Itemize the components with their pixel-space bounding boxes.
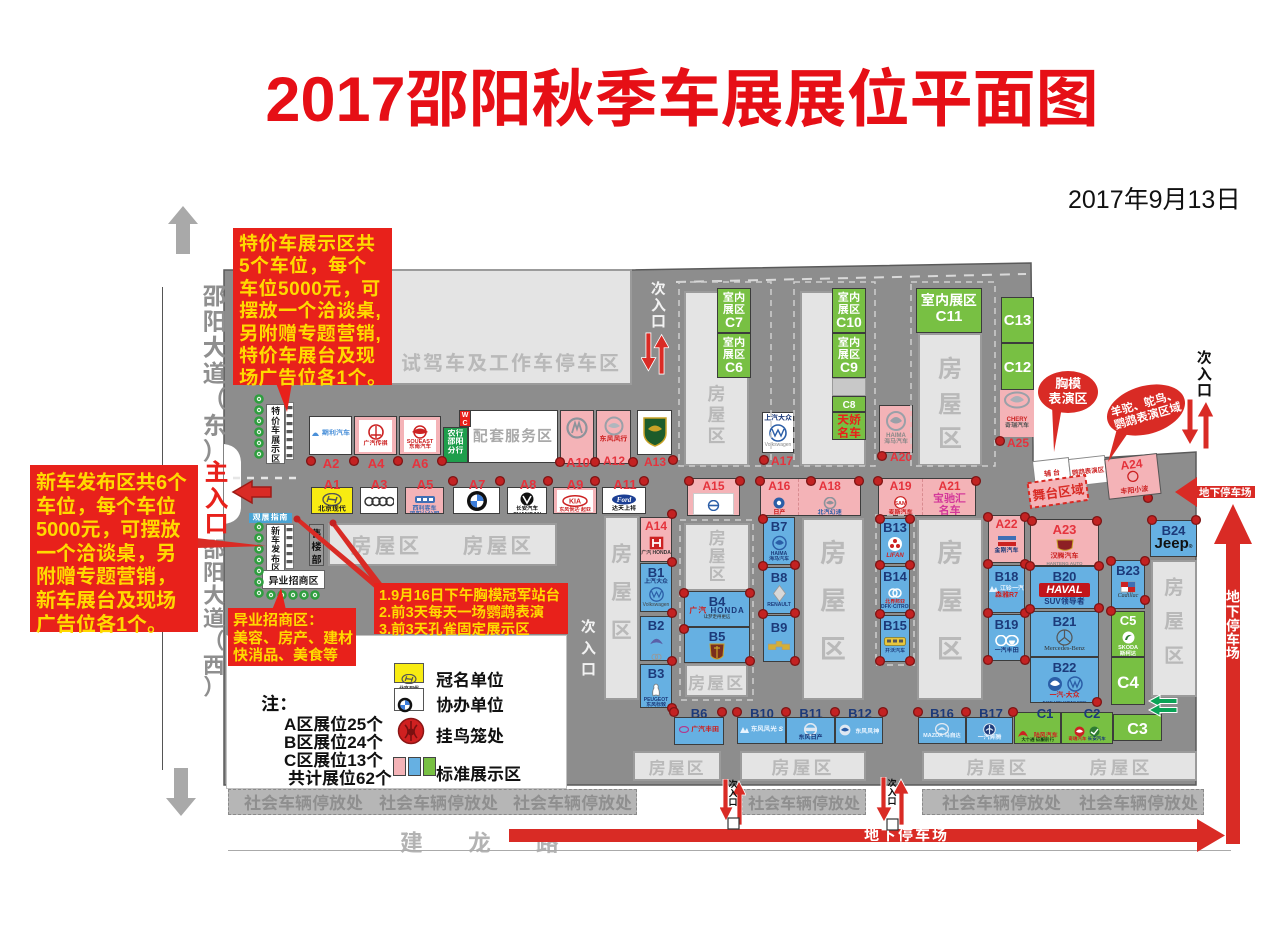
svg-text:地下停车场: 地下停车场 — [1199, 485, 1252, 500]
svg-text:KIA: KIA — [569, 499, 581, 506]
svg-text:次入口: 次入口 — [886, 778, 899, 806]
svg-text:地下停车场: 地下停车场 — [1223, 589, 1243, 660]
svg-text:次入口: 次入口 — [727, 779, 740, 807]
